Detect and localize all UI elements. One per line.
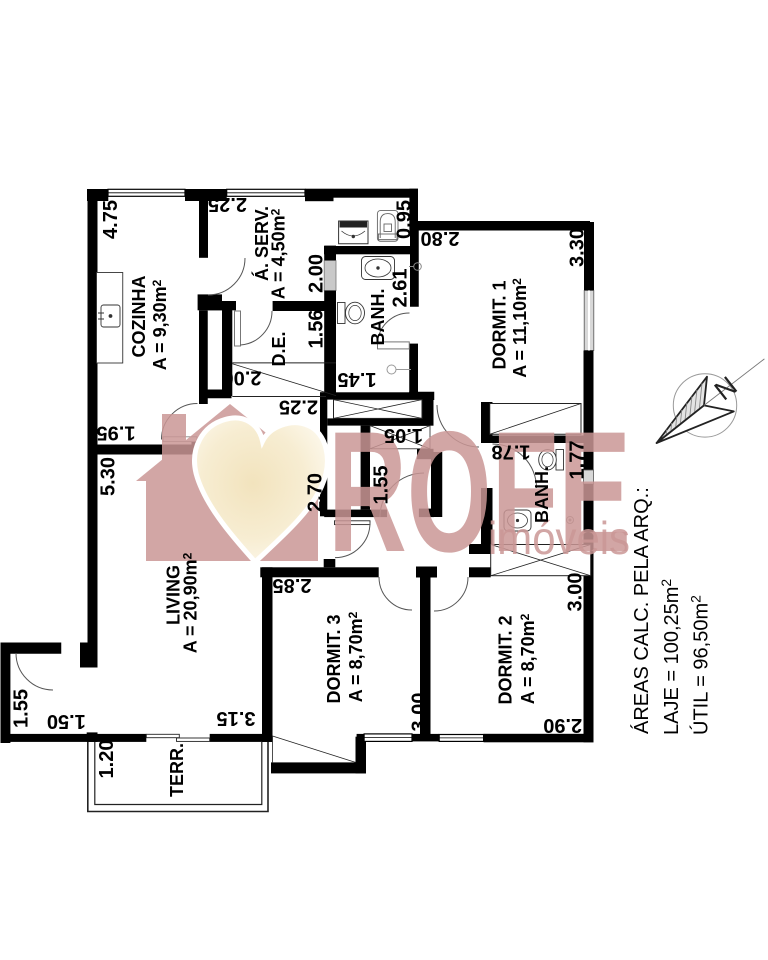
svg-text:A = 8,70m2: A = 8,70m2 (346, 611, 366, 702)
svg-text:1.55: 1.55 (11, 689, 33, 728)
svg-text:3.00: 3.00 (565, 573, 587, 612)
svg-text:1.20: 1.20 (96, 740, 118, 779)
svg-text:ÚTIL = 96,50m2: ÚTIL = 96,50m2 (688, 595, 713, 735)
svg-text:DORMIT. 3: DORMIT. 3 (324, 614, 344, 703)
svg-text:2.80: 2.80 (421, 227, 460, 249)
svg-text:1.45: 1.45 (338, 368, 377, 390)
svg-text:A = 20,90m2: A = 20,90m2 (181, 552, 201, 653)
svg-text:DORMIT. 2: DORMIT. 2 (496, 615, 516, 704)
svg-text:2.85: 2.85 (273, 574, 312, 596)
svg-text:1.55: 1.55 (371, 466, 393, 505)
svg-text:2.25: 2.25 (208, 193, 247, 215)
svg-text:2.61: 2.61 (390, 269, 412, 308)
svg-text:1.77: 1.77 (567, 441, 589, 480)
svg-text:3.00: 3.00 (409, 693, 431, 732)
svg-text:N: N (709, 371, 743, 407)
svg-text:2.90: 2.90 (543, 714, 582, 736)
svg-text:2.25: 2.25 (279, 396, 318, 418)
svg-text:DORMIT. 1: DORMIT. 1 (490, 280, 510, 369)
svg-text:0.95: 0.95 (394, 200, 416, 239)
svg-text:1.78: 1.78 (492, 441, 531, 463)
svg-text:4.75: 4.75 (100, 200, 122, 239)
svg-text:COZINHA: COZINHA (129, 276, 149, 358)
svg-text:LAJE = 100,25m2: LAJE = 100,25m2 (658, 579, 683, 735)
svg-text:1.95: 1.95 (97, 422, 136, 444)
svg-text:A = 11,10m2: A = 11,10m2 (510, 278, 530, 378)
svg-text:imóveis: imóveis (488, 512, 630, 564)
svg-text:1.05: 1.05 (384, 424, 423, 446)
svg-text:1.50: 1.50 (47, 710, 86, 732)
svg-text:3.30: 3.30 (567, 228, 589, 267)
svg-text:D.E.: D.E. (269, 331, 289, 366)
svg-text:3.15: 3.15 (217, 707, 256, 729)
svg-text:1.56: 1.56 (306, 310, 328, 349)
svg-text:A = 9,30m2: A = 9,30m2 (150, 279, 170, 370)
svg-text:A = 8,70m2: A = 8,70m2 (518, 613, 538, 704)
svg-text:2.00: 2.00 (223, 367, 262, 389)
svg-text:2.00: 2.00 (306, 254, 328, 293)
svg-text:BANH.: BANH. (368, 289, 388, 346)
svg-text:2.70: 2.70 (305, 473, 327, 512)
svg-text:A = 4,50m2: A = 4,50m2 (269, 208, 289, 299)
svg-text:TERR.: TERR. (167, 743, 187, 797)
svg-text:5.30: 5.30 (98, 457, 120, 496)
svg-text:BANH.: BANH. (532, 466, 552, 523)
svg-text:ÁREAS CALC. PELA ARQ.:: ÁREAS CALC. PELA ARQ.: (630, 487, 653, 734)
